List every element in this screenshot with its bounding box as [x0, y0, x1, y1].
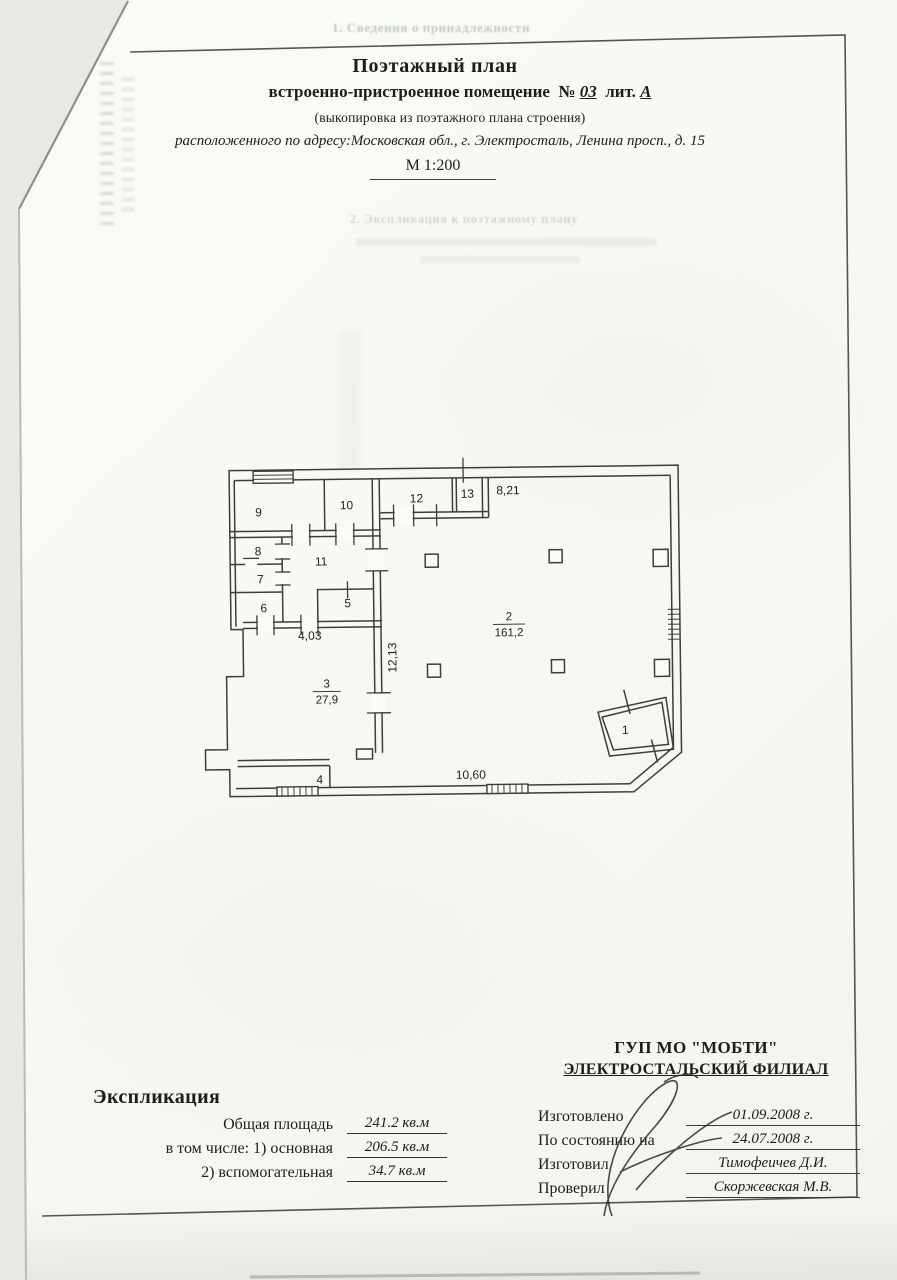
room-label-11: 11	[315, 554, 328, 568]
room-label-3: 3	[323, 678, 330, 690]
address-line: расположенного по адресу:Московская обл.…	[140, 133, 740, 150]
scanned-floor-plan-document: { "page": { "bleedthrough_top": "1. Свед…	[0, 0, 897, 1280]
explication-table: Общая площадь 241.2 кв.м в том числе: 1)…	[95, 1110, 447, 1182]
room-label-2: 2	[506, 611, 513, 623]
explication-row-value: 241.2 кв.м	[347, 1115, 447, 1134]
premise-number: 03	[580, 82, 597, 101]
subtitle-note: (выкопировка из поэтажного плана строени…	[250, 110, 650, 126]
room-label-5: 5	[344, 596, 351, 610]
liter-label: лит.	[605, 82, 636, 101]
subtitle-prefix: встроенно-пристроенное помещение	[269, 82, 550, 101]
explication-row: в том числе: 1) основная 206.5 кв.м	[95, 1134, 447, 1158]
explication-row-value: 34.7 кв.м	[347, 1163, 447, 1182]
explication-title: Экспликация	[93, 1086, 220, 1109]
explication-row-label: в том числе: 1) основная	[95, 1140, 333, 1158]
document-subtitle: встроенно-пристроенное помещение № 03 ли…	[215, 82, 705, 102]
explication-row: 2) вспомогательная 34.7 кв.м	[95, 1158, 447, 1182]
room-label-1: 1	[622, 723, 629, 737]
document-title: Поэтажный план	[285, 55, 585, 78]
room-area-2: 161,2	[495, 627, 524, 639]
organization-name: ГУП МО "МОБТИ"	[540, 1038, 852, 1058]
dimension-top: 8,21	[496, 483, 520, 497]
room-label-9: 9	[255, 505, 262, 519]
explication-row-label: 2) вспомогательная	[95, 1164, 333, 1182]
room-label-6: 6	[260, 601, 267, 615]
room-label-7: 7	[257, 572, 264, 586]
explication-row-value: 206.5 кв.м	[347, 1139, 447, 1158]
explication-row-label: Общая площадь	[95, 1116, 333, 1134]
signature	[580, 1068, 780, 1218]
number-sign: №	[558, 82, 575, 101]
liter-value: А	[640, 82, 651, 101]
room-label-4: 4	[316, 773, 323, 787]
room-area-3: 27,9	[316, 694, 339, 706]
room-label-12: 12	[410, 491, 424, 505]
dimension-vertical: 12,13	[385, 642, 399, 673]
room-label-13: 13	[461, 487, 475, 501]
floor-plan-drawing: 9 10 12 13 8 11 7 6 5 4 1 2 161,2 3 27,9…	[196, 449, 700, 807]
room-label-8: 8	[255, 544, 262, 558]
dimension-middle: 4,03	[298, 629, 322, 643]
dimension-bottom: 10,60	[456, 768, 487, 782]
room-label-10: 10	[340, 498, 354, 512]
explication-row: Общая площадь 241.2 кв.м	[95, 1110, 447, 1134]
scale-label: М 1:200	[370, 157, 496, 180]
